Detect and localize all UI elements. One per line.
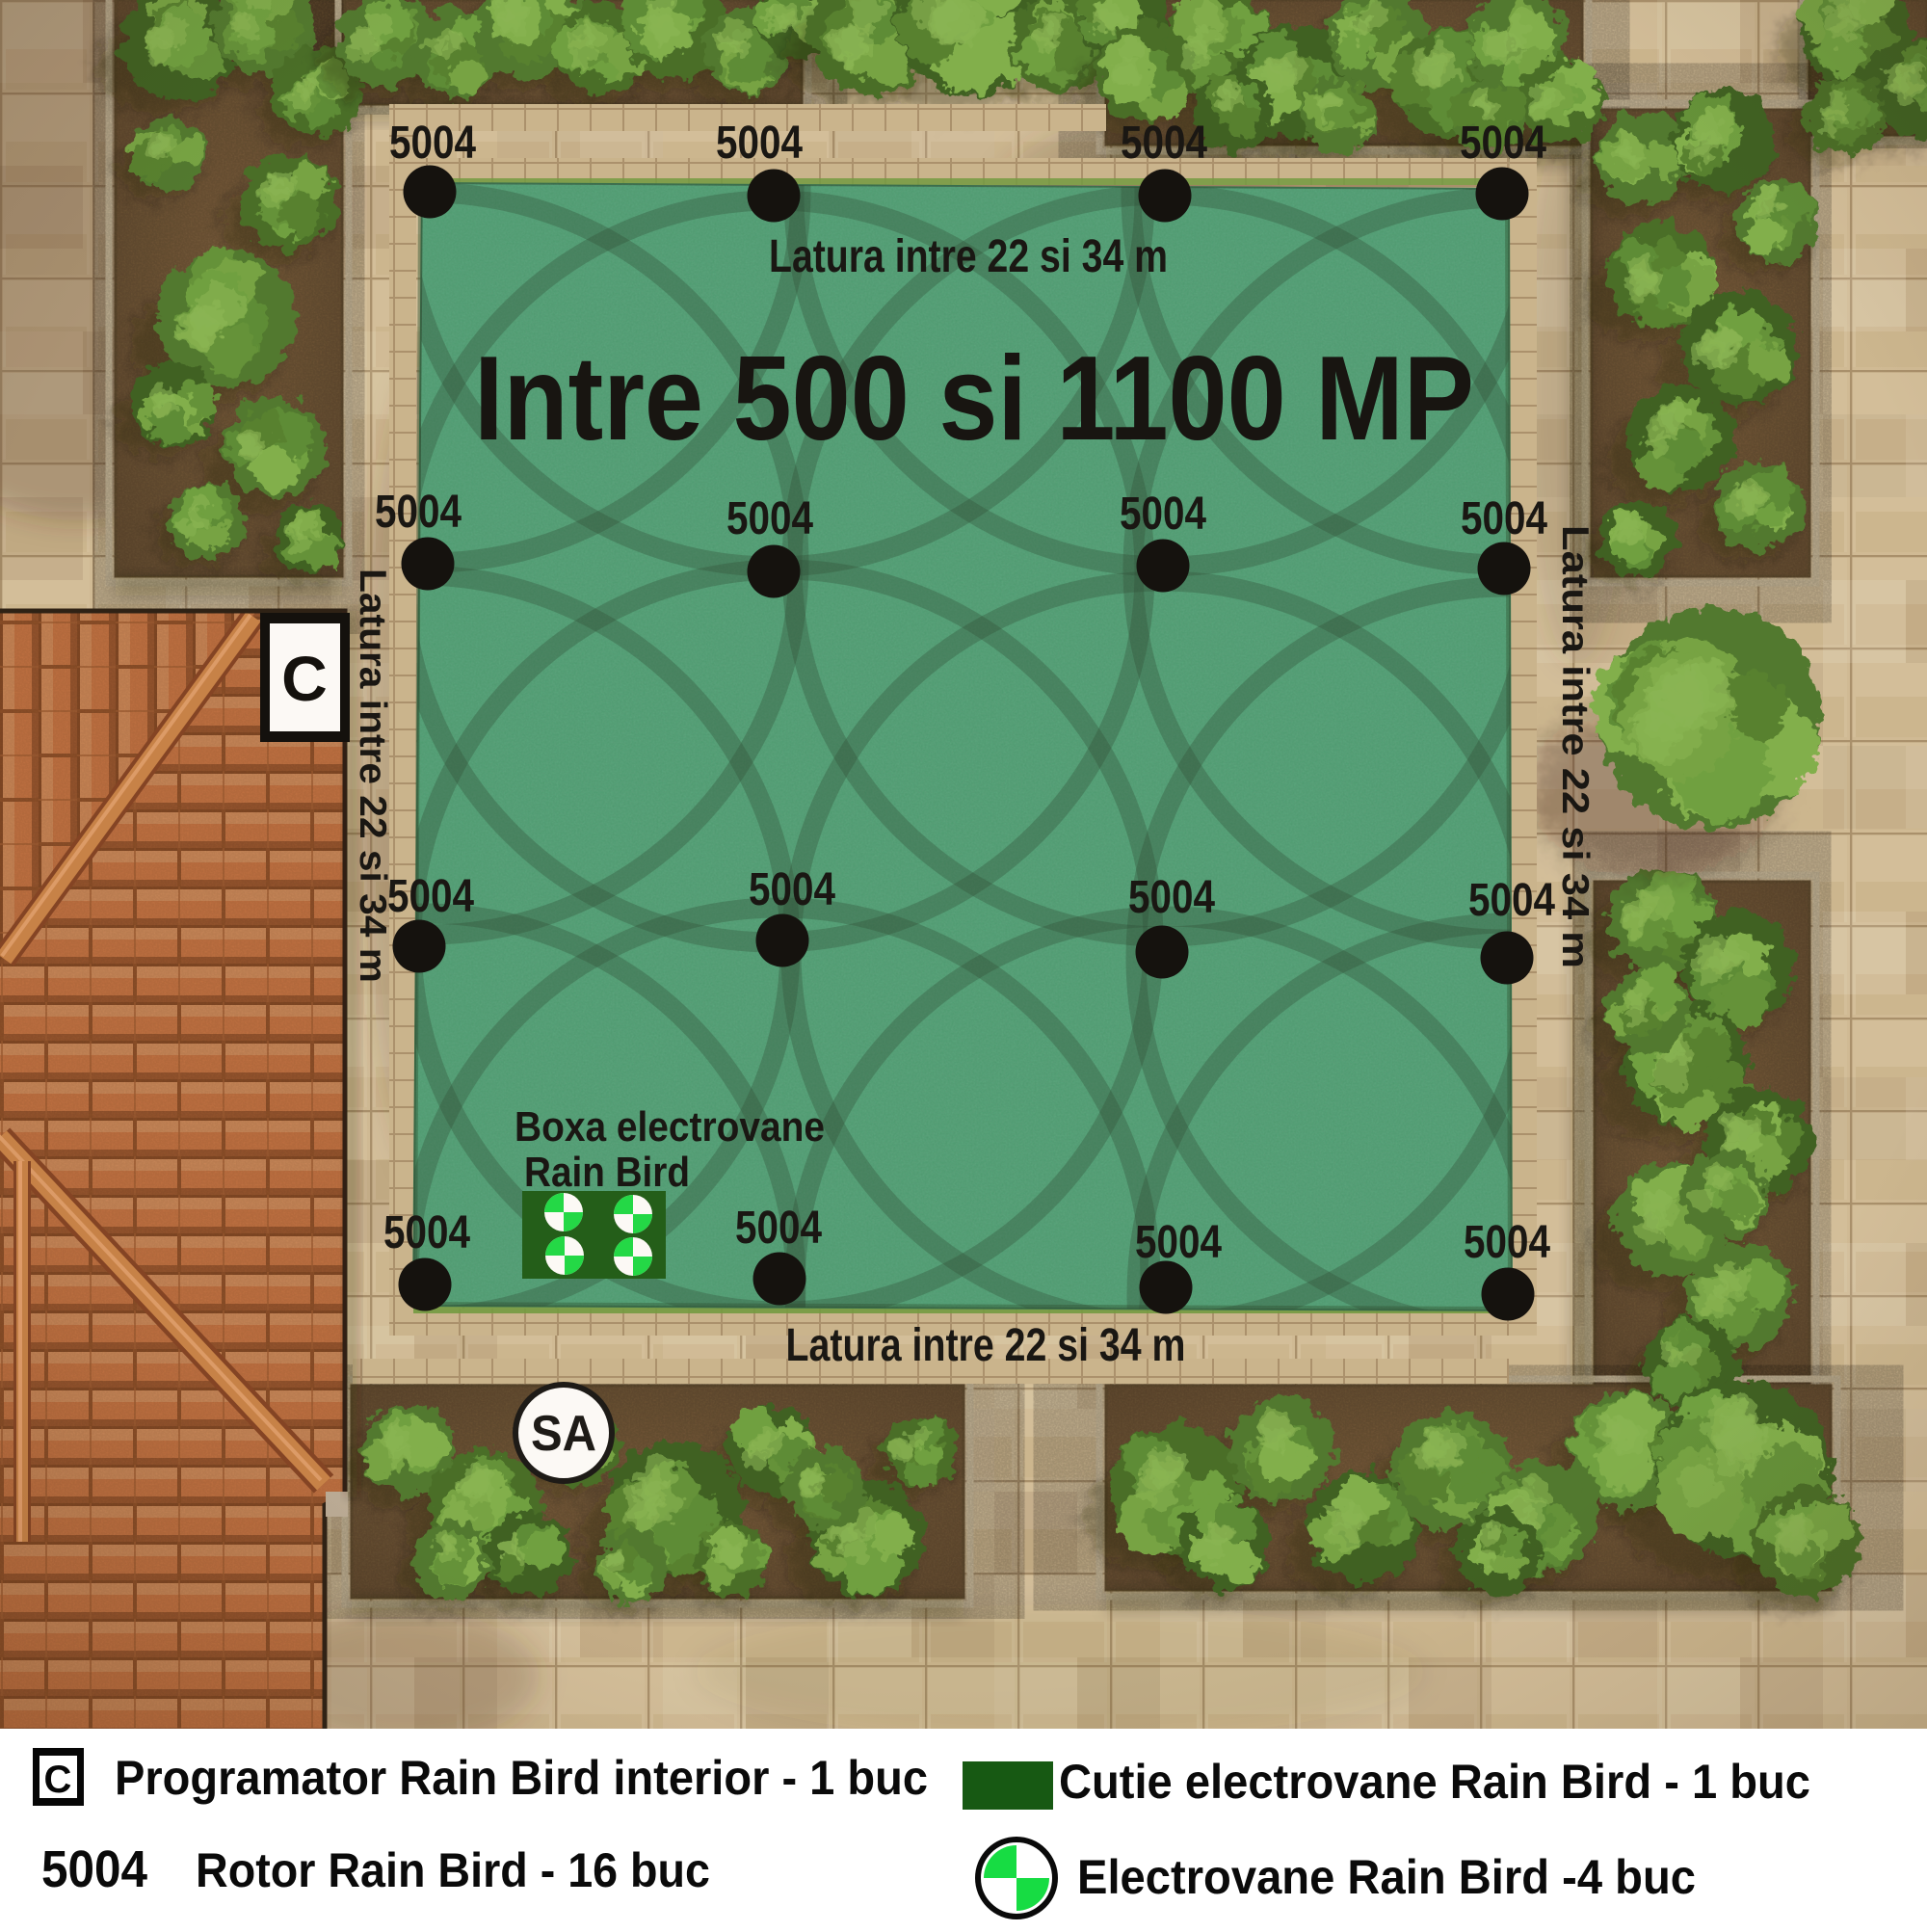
svg-text:Electrovane Rain Bird -4 buc: Electrovane Rain Bird -4 buc: [1077, 1850, 1696, 1904]
svg-text:C: C: [44, 1759, 72, 1801]
svg-text:Rotor Rain Bird - 16 buc: Rotor Rain Bird - 16 buc: [196, 1843, 710, 1897]
svg-text:Programator Rain Bird interior: Programator Rain Bird interior - 1 buc: [115, 1751, 928, 1805]
svg-text:Cutie electrovane Rain Bird -: Cutie electrovane Rain Bird - 1 buc: [1059, 1755, 1810, 1809]
svg-text:5004: 5004: [41, 1840, 147, 1898]
